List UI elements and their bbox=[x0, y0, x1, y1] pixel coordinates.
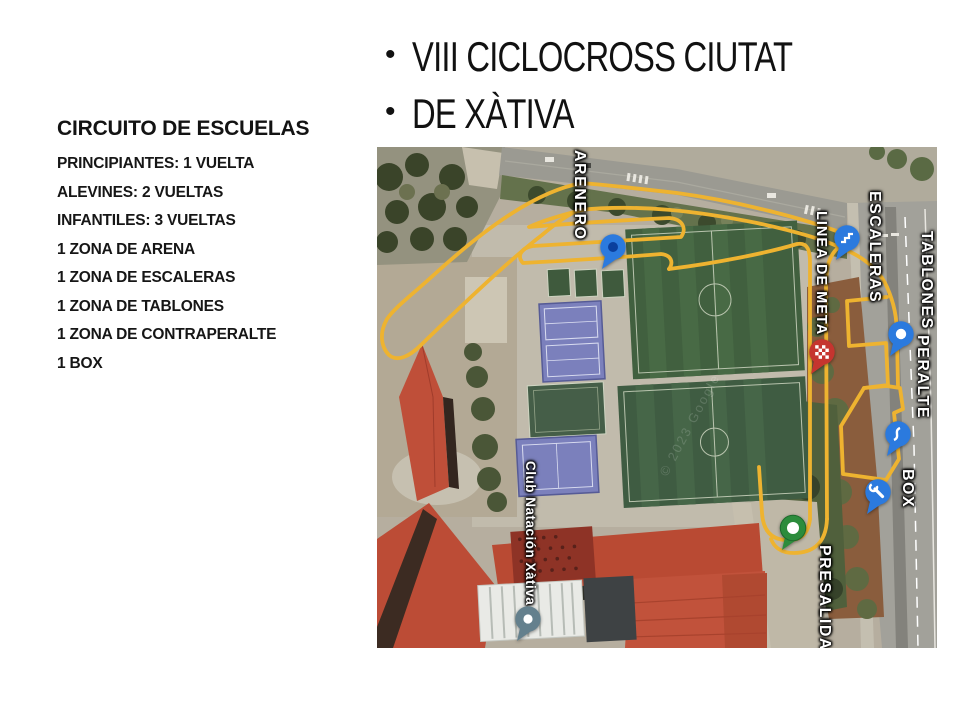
title-text-2: DE XÀTIVA bbox=[412, 90, 574, 138]
title-line-1: • VIII CICLOCROSS CIUTAT bbox=[385, 33, 899, 90]
course-map: © 2023 Google bbox=[377, 147, 937, 648]
tablones-pin bbox=[884, 319, 918, 359]
label-arenero: ARENERO bbox=[570, 150, 588, 241]
escaleras-pin bbox=[830, 223, 864, 263]
list-item: 1 ZONA DE CONTRAPERALTE bbox=[57, 326, 377, 355]
label-linea-de-meta: LINEA DE META bbox=[813, 211, 829, 335]
start-circle-icon bbox=[787, 522, 799, 534]
circuit-info-panel: CIRCUITO DE ESCUELAS PRINCIPIANTES: 1 VU… bbox=[57, 117, 377, 383]
list-item: 1 ZONA DE ESCALERAS bbox=[57, 269, 377, 298]
list-item: INFANTILES: 3 VUELTAS bbox=[57, 212, 377, 241]
list-item: 1 ZONA DE ARENA bbox=[57, 241, 377, 270]
title-line-2: • DE XÀTIVA bbox=[385, 90, 899, 147]
arenero-pin bbox=[596, 232, 630, 272]
list-item: PRINCIPIANTES: 1 VUELTA bbox=[57, 155, 377, 184]
dot-icon bbox=[523, 614, 532, 623]
box-pin bbox=[861, 477, 895, 517]
presalida-pin bbox=[776, 513, 810, 553]
linea-de-meta-pin bbox=[805, 337, 839, 377]
bullet-icon: • bbox=[385, 90, 396, 134]
list-item: ALEVINES: 2 VUELTAS bbox=[57, 184, 377, 213]
label-presalida: PRESALIDA bbox=[815, 545, 833, 648]
peralte-pin bbox=[881, 419, 915, 459]
club-natacion-pin bbox=[511, 604, 545, 644]
list-item: 1 BOX bbox=[57, 355, 377, 384]
panel-heading: CIRCUITO DE ESCUELAS bbox=[57, 117, 377, 141]
slide-title: • VIII CICLOCROSS CIUTAT • DE XÀTIVA bbox=[385, 33, 899, 147]
label-club-natacion: Club Natación Xàtiva bbox=[523, 461, 538, 605]
title-text-1: VIII CICLOCROSS CIUTAT bbox=[412, 33, 792, 81]
list-item: 1 ZONA DE TABLONES bbox=[57, 298, 377, 327]
label-escaleras: ESCALERAS bbox=[865, 191, 883, 303]
dot-icon bbox=[608, 242, 618, 252]
label-tablones: TABLONES bbox=[917, 231, 935, 330]
label-box: BOX bbox=[898, 469, 916, 508]
presentation-slide: • VIII CICLOCROSS CIUTAT • DE XÀTIVA CIR… bbox=[0, 0, 960, 720]
dot-icon bbox=[896, 329, 906, 339]
bullet-icon: • bbox=[385, 33, 396, 77]
